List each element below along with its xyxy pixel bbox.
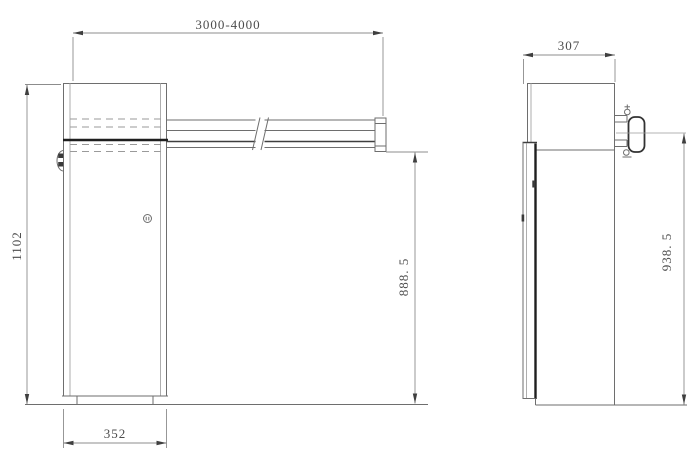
- base-width-label: 352: [104, 426, 127, 441]
- boom-hidden-lines: [63, 119, 168, 152]
- door-panel-side: [522, 143, 537, 406]
- cabinet-depth-label: 307: [558, 38, 581, 53]
- dim-boom-axis-height: 938. 5: [659, 134, 686, 405]
- boom-end-cap: [375, 118, 386, 152]
- clamp-bolt-top: [625, 105, 631, 115]
- cabinet-front: [63, 83, 167, 396]
- barrier-gate-drawing-canvas: 3000-4000 1102 352: [0, 0, 700, 464]
- dim-boom-clearance: 888. 5: [386, 152, 428, 404]
- door-hinge: [57, 151, 64, 172]
- cabinet-head-side: [527, 83, 615, 405]
- dim-overall-height: 1102: [9, 85, 61, 405]
- dim-base-width: 352: [64, 409, 167, 448]
- boom-arm: [167, 118, 387, 152]
- overall-height-label: 1102: [9, 231, 24, 261]
- dim-boom-length: 3000-4000: [73, 17, 383, 116]
- boom-bracket-side: [615, 116, 628, 147]
- boom-clearance-label: 888. 5: [396, 258, 411, 297]
- door-lock: [144, 215, 152, 223]
- dim-cabinet-depth: 307: [523, 38, 615, 84]
- base-plate: [62, 396, 168, 405]
- front-view: 3000-4000 1102 352: [9, 17, 428, 448]
- technical-drawing-sheet: 3000-4000 1102 352: [0, 0, 700, 464]
- boom-cross-section: [616, 105, 686, 158]
- boom-axis-height-label: 938. 5: [659, 233, 674, 272]
- boom-length-label: 3000-4000: [195, 17, 260, 32]
- side-view: 307 938. 5: [522, 38, 687, 405]
